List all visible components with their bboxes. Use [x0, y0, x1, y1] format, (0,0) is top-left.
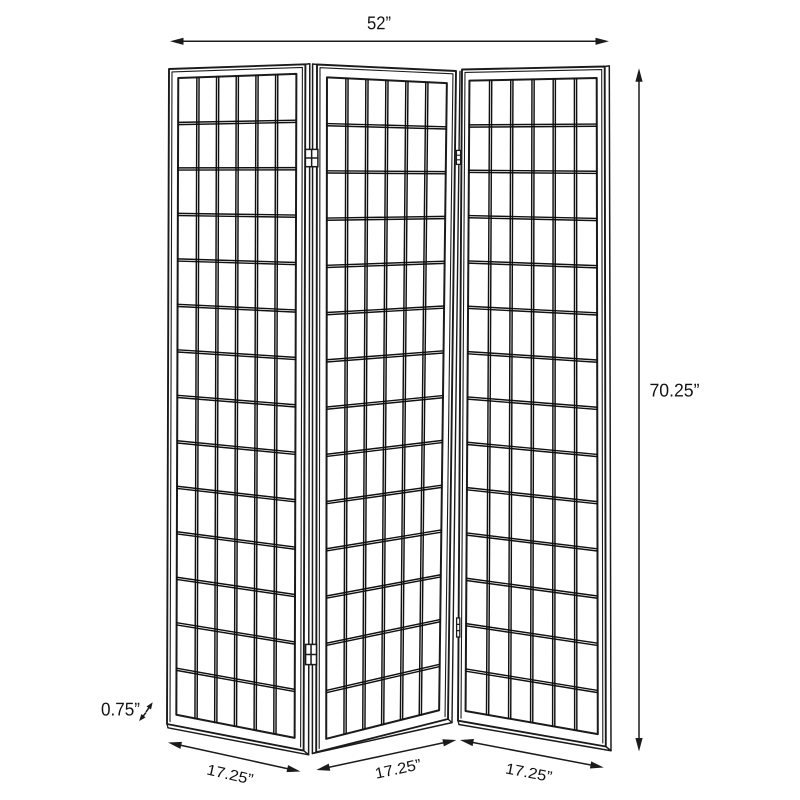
svg-text:17.25”: 17.25”	[504, 760, 553, 786]
svg-text:0.75”: 0.75”	[101, 698, 140, 719]
svg-text:17.25”: 17.25”	[205, 762, 255, 789]
svg-text:17.25”: 17.25”	[373, 756, 423, 782]
svg-text:70.25”: 70.25”	[649, 379, 699, 400]
svg-text:52”: 52”	[367, 12, 391, 33]
